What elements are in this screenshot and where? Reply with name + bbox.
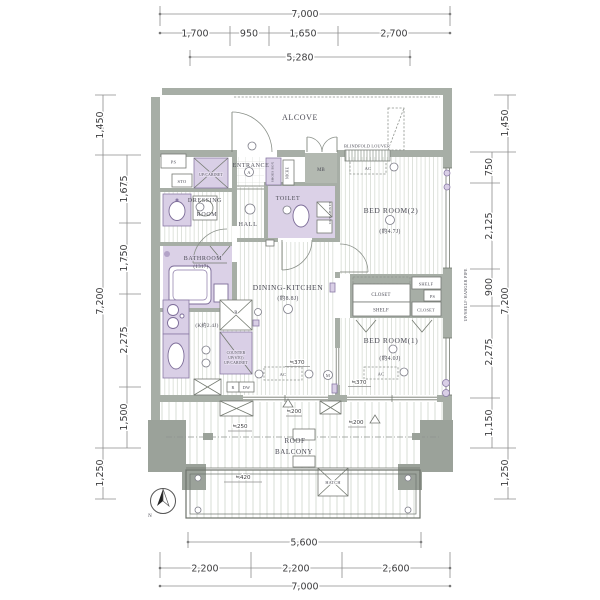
- label-circle-a: A: [247, 170, 251, 175]
- floor-plan-drawing: 7,000 1,700 950 1,650 2,700 5,280 1,450 …: [0, 0, 600, 600]
- dimensions-top: 7,000 1,700 950 1,650 2,700 5,280: [159, 6, 452, 66]
- label-counter-2: UP(STO): [228, 356, 244, 360]
- dim-top-total: 7,000: [291, 9, 318, 20]
- label-shelf-1: SHELF: [373, 309, 389, 314]
- dim-left-seg-4: 1,500: [119, 403, 130, 430]
- label-bedroom2: BED ROOM(2): [364, 206, 419, 215]
- dim-top-seg-1: 1,700: [181, 29, 208, 40]
- pillar-right: [420, 420, 453, 472]
- label-ac-br1: AC: [378, 372, 385, 377]
- annot-200-a: ≒200: [286, 409, 302, 415]
- label-ac-dk: AC: [280, 372, 287, 377]
- dim-right-seg-5: 1,150: [484, 409, 495, 436]
- annot-250: ≒250: [232, 424, 248, 430]
- label-alcove: ALCOVE: [282, 113, 318, 122]
- annot-370-dk: ≒370: [289, 360, 305, 366]
- annot-200-b: ≒200: [348, 420, 364, 426]
- dim-left-lower: 1,250: [95, 459, 106, 486]
- label-bedroom2-size: (約4.7J): [379, 227, 400, 235]
- label-niche: NICHE: [286, 166, 290, 179]
- dimensions-bottom: 5,600 2,200 2,200 2,600 7,000: [159, 532, 452, 593]
- dim-bottom-seg-3: 2,600: [382, 564, 409, 575]
- floor-plan-canvas: 7,000 1,700 950 1,650 2,700 5,280 1,450 …: [0, 0, 600, 600]
- dim-left-seg-3: 2,275: [119, 326, 130, 353]
- label-entrance: ENTRANCE: [233, 163, 270, 169]
- dim-top-seg-4: 2,700: [380, 29, 407, 40]
- label-shoes-box: SHOES BOX: [271, 161, 275, 182]
- label-mb: MB: [317, 168, 325, 173]
- label-blindfold-louver: BLINDFOLD LOUVER: [344, 144, 390, 149]
- dim-right-seg-3: 900: [484, 278, 495, 296]
- dimensions-left: 1,450 7,200 1,675 1,750 2,275 1,500 1,25…: [95, 95, 141, 499]
- label-hall: HALL: [239, 221, 258, 228]
- label-refrigerator: R: [234, 311, 238, 316]
- dim-top-sub: 5,280: [286, 53, 313, 64]
- label-bedroom1: BED ROOM(1): [364, 336, 419, 345]
- dimensions-right: 1,450 7,200 750 2,125 900 2,275 1,150 1,…: [463, 95, 516, 499]
- label-bathroom: BATHROOM: [184, 256, 223, 262]
- blindfold-louver: [345, 150, 390, 161]
- label-balcony: BALCONY: [275, 448, 313, 456]
- dim-right-seg-2: 2,125: [484, 212, 495, 239]
- annot-370-br1: ≒370: [351, 380, 367, 386]
- dim-bottom-seg-1: 2,200: [191, 564, 218, 575]
- label-up-shelf-hanger-pipe: UP/SHELF·HANGER PIPE: [463, 268, 468, 321]
- label-up-cabinet-entry: UP/CABINET: [199, 173, 223, 177]
- label-up-cabinet-toilet: UP/CABINET: [328, 201, 332, 224]
- label-toilet: TOILET: [276, 196, 300, 202]
- label-roof: ROOF: [284, 437, 305, 445]
- toilet-bowl: [293, 205, 309, 227]
- bathtub: [169, 266, 211, 304]
- dim-right-upper: 1,450: [500, 109, 511, 136]
- label-bathroom-size: (1317): [193, 265, 208, 270]
- pillar-left: [148, 420, 186, 472]
- dim-left-total: 7,200: [95, 287, 106, 314]
- label-ac-br2: AC: [365, 166, 372, 171]
- label-ps-entry: PS: [171, 160, 177, 165]
- label-bedroom1-size: (約4.0J): [379, 354, 400, 362]
- label-ps-band: PS: [430, 294, 436, 299]
- dim-bottom-seg-2: 2,200: [282, 564, 309, 575]
- dim-bottom-total: 7,000: [291, 582, 318, 593]
- dim-left-seg-1: 1,675: [119, 175, 130, 202]
- compass: N: [148, 489, 175, 520]
- label-counter-1: COUNTER: [227, 351, 246, 355]
- label-sto: STO: [177, 179, 187, 184]
- dim-right-total: 7,200: [500, 287, 511, 314]
- dim-bottom-sub: 5,600: [290, 538, 317, 549]
- label-dw: DW: [243, 385, 250, 390]
- dim-right-seg-4: 2,275: [484, 338, 495, 365]
- dim-left-seg-2: 1,750: [119, 244, 130, 271]
- annot-420: ≒420: [235, 475, 251, 481]
- label-shelf-2: SHELF: [419, 282, 434, 287]
- label-north: N: [148, 514, 152, 519]
- label-dining-kitchen: DINING-KITCHEN: [253, 283, 323, 292]
- label-circle-m: M: [326, 373, 330, 378]
- dim-right-seg-1: 750: [484, 158, 495, 176]
- label-dk-size: (約8.8J): [277, 294, 298, 302]
- label-r-small: R: [232, 385, 235, 390]
- label-closet-2: CLOSET: [417, 308, 435, 313]
- label-dressing-2: ROOM: [197, 212, 217, 218]
- label-kitchen-size: (K約2.4J): [195, 321, 218, 329]
- label-counter-3: UP/CABINET: [224, 361, 248, 365]
- entrance-fixtures: PS STO UP/CABINET SHOES BOX NICHE A: [161, 142, 294, 189]
- dim-right-lower: 1,250: [500, 459, 511, 486]
- label-closet-1: CLOSET: [371, 293, 390, 298]
- dim-left-upper: 1,450: [95, 111, 106, 138]
- dim-top-seg-3: 1,650: [289, 29, 316, 40]
- kitchen-sink: [168, 343, 184, 369]
- label-hatch: HATCH: [325, 480, 340, 485]
- label-dressing-1: DRESSING: [188, 198, 222, 204]
- dim-top-seg-2: 950: [240, 29, 258, 40]
